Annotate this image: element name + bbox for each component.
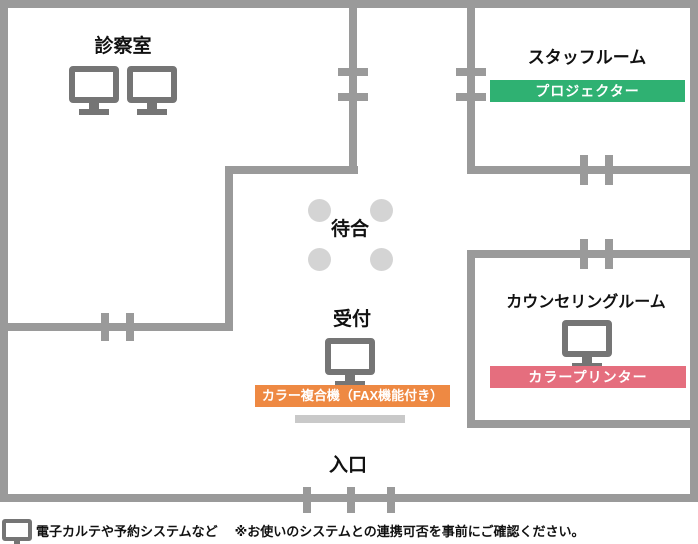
room-label-entrance: 入口 [308,456,388,477]
room-label-examination: 診察室 [70,37,176,58]
wall-outer-left [0,0,8,502]
wall-center-divider [349,8,357,174]
door-marker-staffroom-left-1 [456,68,486,76]
legend: 電子カルテや予約システムなど ※お使いのシステムとの連携可否を事前にご確認くださ… [36,521,584,540]
waiting-chair [308,248,331,271]
wall-counseling-left [467,250,475,428]
reception-monitor-icon [325,338,375,387]
monitor-screen [562,320,612,357]
room-label-waiting: 待合 [310,220,390,241]
waiting-chair [370,248,393,271]
monitor-screen [69,66,119,103]
floor-plan: 診察室 スタッフルーム 待合 受付 カウンセリングルーム 入口 プロジェクター … [0,0,698,544]
waiting-chair [370,199,393,222]
monitor-base [79,109,109,115]
monitor-screen [127,66,177,103]
door-marker-staffroom-bottom-1 [580,155,588,185]
legend-note: ※お使いのシステムとの連携可否を事前にご確認ください。 [235,521,585,540]
monitor-base [137,109,167,115]
monitor-screen [2,519,32,541]
wall-examroom-right [225,166,233,331]
room-label-counseling: カウンセリングルーム [491,294,681,312]
door-marker-center-divider-2 [338,93,368,101]
door-marker-entrance-1 [303,487,311,513]
door-marker-counseling-top-2 [605,239,613,269]
examination-monitor-icon-2 [127,66,177,115]
wall-staffroom-left [467,8,475,174]
equipment-badge-projector: プロジェクター [490,80,685,102]
equipment-badge-printer: カラープリンター [490,366,686,388]
equipment-badge-copier: カラー複合機（FAX機能付き） [255,385,450,407]
door-marker-staffroom-left-2 [456,93,486,101]
wall-outer-top [0,0,698,8]
examination-monitor-icon-1 [69,66,119,115]
door-marker-left-corridor-1 [101,313,109,341]
room-label-reception: 受付 [312,310,392,331]
door-marker-counseling-top-1 [580,239,588,269]
monitor-screen [325,338,375,375]
door-marker-entrance-3 [387,487,395,513]
counseling-monitor-icon [562,320,612,369]
door-marker-center-divider-1 [338,68,368,76]
door-marker-staffroom-bottom-2 [605,155,613,185]
door-marker-entrance-2 [347,487,355,513]
legend-monitor-icon [2,519,32,544]
legend-device-label: 電子カルテや予約システムなど [36,521,218,540]
wall-counseling-bottom [467,420,698,428]
wall-left-corridor [8,323,233,331]
reception-counter [295,415,405,423]
room-label-staff: スタッフルーム [497,49,677,68]
door-marker-left-corridor-2 [126,313,134,341]
waiting-chair [308,199,331,222]
wall-examroom-bottom [225,166,358,174]
